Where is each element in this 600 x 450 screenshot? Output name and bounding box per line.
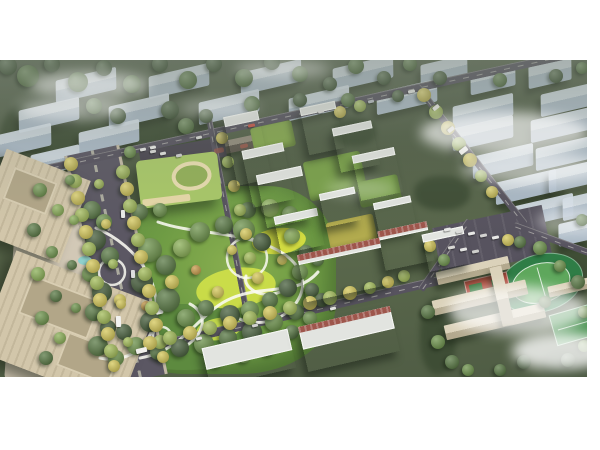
boulevard-tree (131, 233, 145, 247)
plaza-tree (27, 223, 41, 237)
background-tree (549, 69, 563, 83)
mist-cloud (448, 286, 587, 334)
vehicle (131, 270, 135, 278)
street-tree (203, 321, 217, 335)
plaza-tree (39, 351, 53, 365)
boulevard-tree (116, 299, 126, 309)
boulevard-tree (123, 337, 133, 347)
vehicle (121, 210, 125, 218)
mist-cloud (420, 112, 587, 154)
street-tree (417, 88, 431, 102)
street-tree (163, 331, 177, 345)
mist-cloud (180, 100, 260, 116)
park-tree (156, 255, 176, 275)
boulevard-tree (93, 293, 107, 307)
park-tree (227, 245, 237, 255)
boulevard-tree (90, 276, 104, 290)
plaza-tree (33, 183, 47, 197)
background-tree (493, 73, 507, 87)
background-tree (206, 60, 222, 72)
street-tree (431, 335, 445, 349)
mist-cloud (326, 180, 396, 198)
boulevard-tree (145, 301, 159, 315)
background-tree (341, 93, 355, 107)
plaza-tree (69, 215, 79, 225)
park-tree (212, 286, 224, 298)
boulevard-tree (94, 179, 104, 189)
park-tree (198, 300, 214, 316)
park-tree (277, 255, 287, 265)
street-tree (514, 236, 526, 248)
background-tree (403, 60, 417, 71)
background-tree (433, 71, 447, 85)
plaza-tree (31, 267, 45, 281)
vehicle (116, 316, 121, 327)
street-tree (398, 270, 410, 282)
boulevard-tree (79, 225, 93, 239)
background-tree (179, 71, 197, 89)
street-tree (263, 306, 277, 320)
boulevard-tree (120, 182, 134, 196)
boulevard-tree (104, 344, 118, 358)
street-tree (244, 252, 256, 264)
park-tree (156, 288, 180, 312)
street-tree (462, 364, 474, 376)
boulevard-tree (134, 250, 148, 264)
boulevard-tree (101, 219, 111, 229)
boulevard-tree (71, 191, 85, 205)
mist-cloud (235, 60, 330, 78)
park-tree (177, 309, 195, 327)
park-tree (191, 265, 201, 275)
background-tree (178, 118, 194, 134)
plaza-tree (67, 260, 77, 270)
park-tree (190, 222, 210, 242)
background-tree (392, 90, 404, 102)
boulevard-tree (149, 318, 163, 332)
kindergarten-building (135, 151, 222, 209)
boulevard-tree (123, 199, 137, 213)
park-tree (173, 239, 191, 257)
mist-cloud (30, 72, 150, 98)
plaza-tree (46, 246, 58, 258)
street-tree (571, 275, 585, 289)
mist-cloud (18, 96, 128, 120)
boulevard-tree (86, 259, 100, 273)
dark-grove (414, 176, 470, 210)
street-tree (421, 305, 435, 319)
street-tree (533, 241, 547, 255)
background-tree (152, 60, 168, 72)
street-tree (283, 301, 297, 315)
background-tree (161, 101, 179, 119)
plaza-tree (35, 311, 49, 325)
plaza-tree (71, 303, 81, 313)
background-tree (293, 93, 307, 107)
boulevard-tree (101, 327, 115, 341)
park-tree (252, 272, 264, 284)
street-tree (554, 260, 566, 272)
boulevard-tree (157, 351, 169, 363)
street-tree (445, 355, 459, 369)
boulevard-tree (82, 242, 96, 256)
boulevard-tree (64, 157, 78, 171)
street-tree (502, 234, 514, 246)
street-tree (354, 100, 366, 112)
background-tree (0, 60, 17, 75)
boulevard-tree (127, 216, 141, 230)
park-tree (153, 203, 167, 217)
kindergarten-oval-courtyard (170, 159, 213, 193)
boulevard-tree (108, 259, 118, 269)
street-tree (494, 364, 506, 376)
park-tree (165, 275, 179, 289)
street-tree (124, 146, 136, 158)
boulevard-tree (108, 360, 120, 372)
street-tree (223, 316, 237, 330)
background-tree (377, 71, 391, 85)
background-tree (576, 62, 587, 74)
boulevard-tree (138, 267, 152, 281)
boulevard-tree (116, 165, 130, 179)
park-tree (253, 233, 271, 251)
street-tree (234, 204, 246, 216)
boulevard-tree (142, 284, 156, 298)
plaza-tree (52, 204, 64, 216)
street-tree (240, 228, 252, 240)
background-tree (323, 77, 337, 91)
park-tree (279, 279, 297, 297)
boulevard-tree (97, 310, 111, 324)
park-tree (215, 216, 233, 234)
background-tree (44, 60, 60, 72)
street-tree (486, 186, 498, 198)
aerial-rendering (0, 60, 587, 377)
plaza-tree (65, 175, 75, 185)
vehicle (368, 99, 374, 103)
plaza-tree (50, 290, 62, 302)
page (0, 0, 600, 450)
plaza-tree (54, 332, 66, 344)
